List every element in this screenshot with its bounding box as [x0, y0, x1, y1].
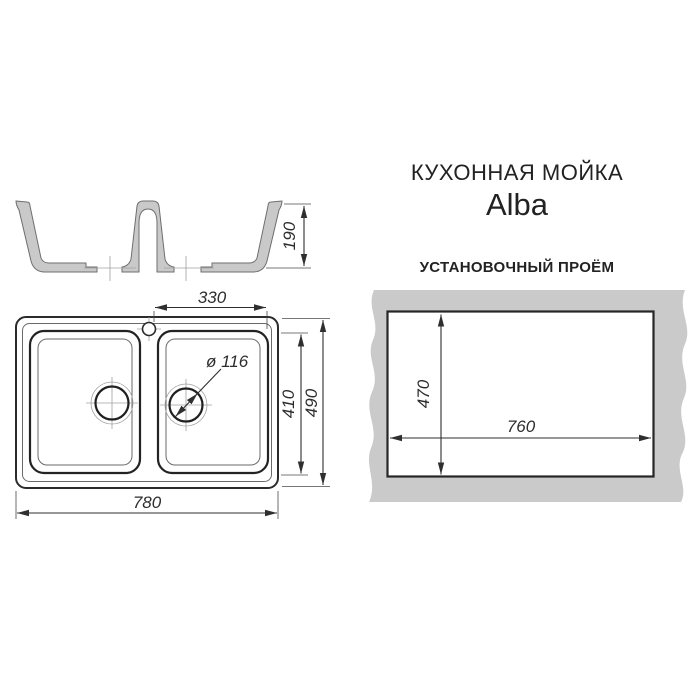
dim-label-overall-width: 780 — [133, 493, 162, 512]
dim-label-bowl-span: 330 — [198, 288, 227, 307]
dim-label-depth: 190 — [280, 221, 299, 250]
sink-outer-edge — [16, 317, 278, 488]
dim-label-drain: ø 116 — [206, 352, 249, 371]
cutout-heading: УСТАНОВОЧНЫЙ ПРОЁМ — [362, 259, 672, 276]
section-right-wall — [201, 201, 282, 272]
top-view-drawing: ø 116 330 410 490 780 — [0, 288, 340, 528]
dim-label-cutout-width: 760 — [507, 417, 536, 436]
title-block: КУХОННАЯ МОЙКА Alba — [362, 160, 672, 222]
dim-label-cutout-depth: 470 — [414, 379, 433, 408]
dim-label-overall-depth: 490 — [302, 388, 321, 417]
section-view-drawing: 190 — [0, 185, 330, 297]
product-model: Alba — [362, 188, 672, 222]
cutout-drawing: 470 760 — [350, 282, 700, 510]
dim-label-bowl-depth: 410 — [279, 389, 298, 418]
section-left-wall — [16, 201, 97, 272]
overall-width-dimension: 780 — [16, 491, 278, 519]
product-title: КУХОННАЯ МОЙКА — [362, 160, 672, 185]
section-divider — [122, 201, 174, 272]
spec-sheet: КУХОННАЯ МОЙКА Alba УСТАНОВОЧНЫЙ ПРОЁМ — [0, 0, 700, 700]
section-drain-centerlines — [84, 256, 214, 281]
